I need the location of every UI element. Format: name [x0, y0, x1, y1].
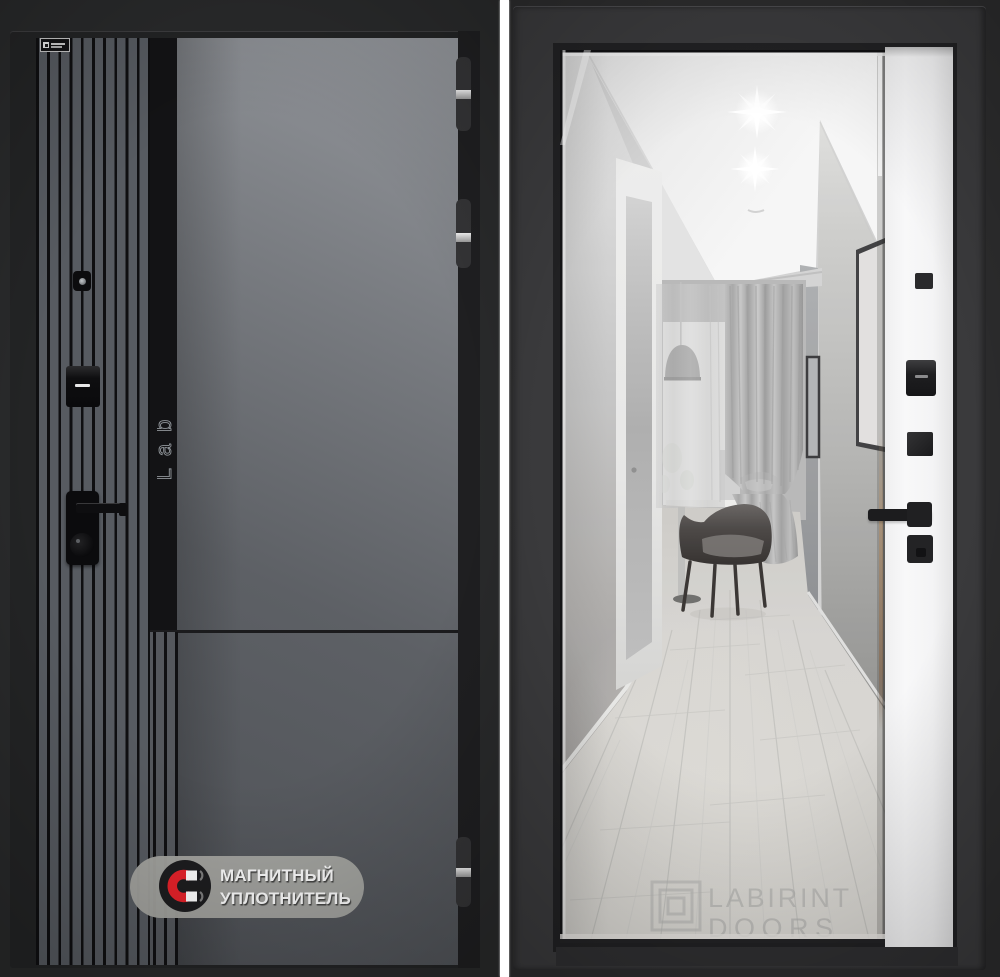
svg-text:Lab: Lab — [157, 408, 176, 481]
svg-text:LABIRINT: LABIRINT — [708, 883, 852, 913]
